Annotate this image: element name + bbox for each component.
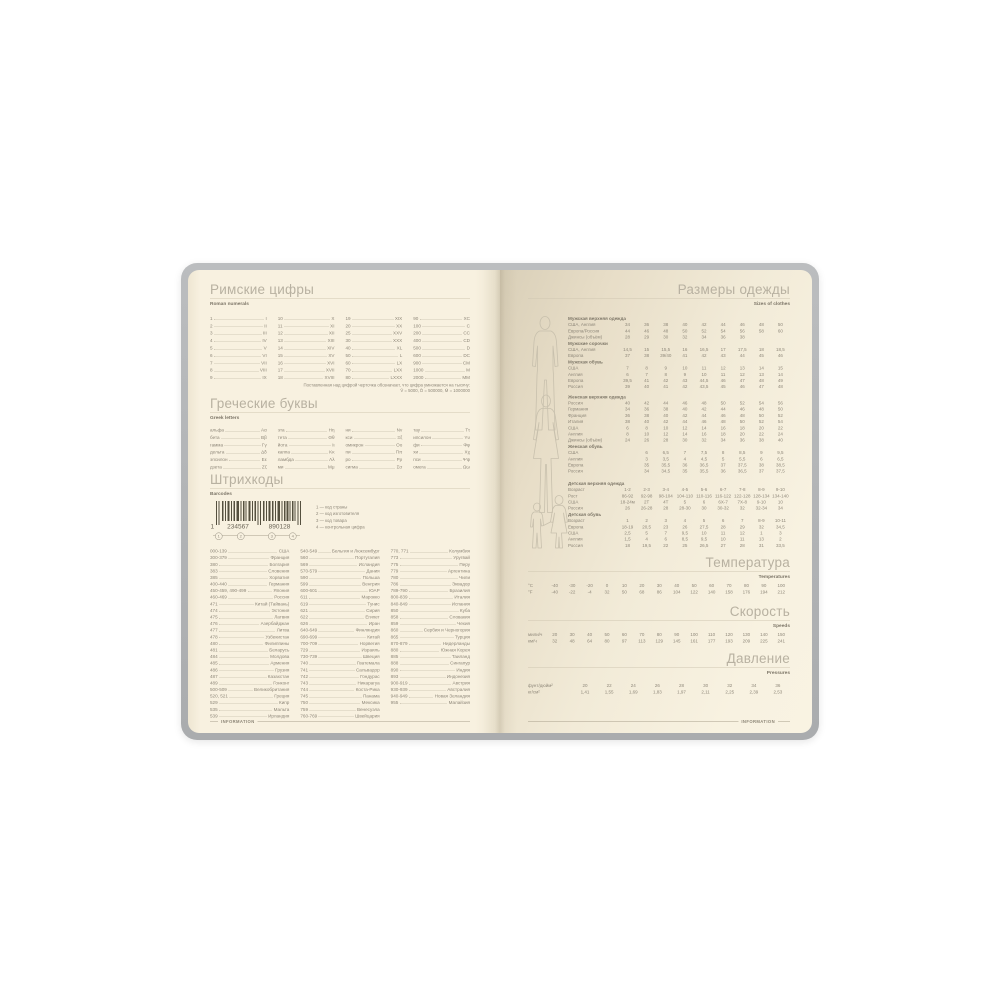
entry-value: Швейцария bbox=[355, 713, 380, 718]
size-value: 38 bbox=[733, 335, 752, 341]
legend-item: 4 — контрольная цифра bbox=[316, 524, 365, 531]
size-value: 37 bbox=[752, 469, 771, 475]
list-item: тетаΘθ bbox=[278, 432, 335, 439]
dot-leader bbox=[228, 558, 269, 559]
metric-value: 122 bbox=[685, 590, 702, 597]
metric-value: 32 bbox=[546, 639, 563, 646]
metric-value: 113 bbox=[633, 639, 650, 646]
list-item: фиΦφ bbox=[413, 440, 470, 447]
barcodes-section: Штрихкоды Barcodes bbox=[210, 472, 470, 718]
size-row: Россия2626-282828-303030-323232-3434 bbox=[568, 506, 790, 512]
size-row: Россия3434,53535,53636,53737,5 bbox=[568, 469, 790, 475]
entry-value: MM bbox=[462, 375, 470, 380]
size-value: 28 bbox=[733, 543, 752, 549]
dot-leader bbox=[400, 611, 459, 612]
list-item: 3III bbox=[210, 328, 267, 335]
dot-leader bbox=[289, 446, 331, 447]
dot-leader bbox=[432, 438, 462, 439]
size-value: 26-28 bbox=[637, 506, 656, 512]
dot-leader bbox=[310, 605, 366, 606]
list-item: эпсилонΕε bbox=[210, 455, 267, 462]
barcode-marker-1: 1 bbox=[215, 532, 223, 540]
dot-leader bbox=[352, 319, 393, 320]
footer-line bbox=[258, 721, 470, 722]
dot-column: 540-549Бельгия и Люксембург560Португалия… bbox=[300, 547, 379, 718]
size-value: 28 bbox=[618, 335, 637, 341]
row-label: Россия bbox=[568, 384, 618, 390]
metric-value: 209 bbox=[738, 639, 755, 646]
pressure-section-subtitle: Pressures bbox=[528, 670, 790, 676]
size-value: 34 bbox=[637, 469, 656, 475]
size-value: 36,5 bbox=[733, 469, 752, 475]
speed-section-subtitle: Speeds bbox=[528, 623, 790, 629]
size-row: Джинсы (объём)28293032343638 bbox=[568, 335, 790, 341]
screenshot-canvas: Римские цифры Roman numerals 1I2II3III4I… bbox=[0, 0, 1000, 1000]
temperature-table: °C-40-30-200102030405060708090100°F-40-2… bbox=[528, 583, 790, 596]
divider-line bbox=[210, 298, 470, 299]
entry-key: 539 bbox=[210, 713, 218, 718]
metric-value: 129 bbox=[651, 639, 668, 646]
size-value: 47 bbox=[752, 384, 771, 390]
size-value: 35 bbox=[675, 469, 694, 475]
size-row: Европа373839/40414243444546 bbox=[568, 353, 790, 359]
dot-leader bbox=[400, 585, 451, 586]
barcodes-section-title: Штрихкоды bbox=[210, 472, 470, 487]
list-item: омикронΟο bbox=[346, 440, 403, 447]
size-value: 31 bbox=[752, 543, 771, 549]
children-figure-icon bbox=[528, 481, 572, 551]
dot-leader bbox=[223, 468, 260, 469]
size-value bbox=[618, 469, 637, 475]
barcodes-section-subtitle: Barcodes bbox=[210, 491, 470, 497]
row-label: км/ч bbox=[528, 639, 546, 646]
metric-row: км/ч324864809711312914516117719320922524… bbox=[528, 639, 790, 646]
entry-value: Ирландия bbox=[268, 713, 289, 718]
list-item: 1000M bbox=[413, 365, 470, 372]
dot-leader bbox=[228, 690, 252, 691]
size-tables: Мужская верхняя одеждаСША, Англия3436384… bbox=[528, 316, 790, 549]
size-value: 32 bbox=[675, 335, 694, 341]
dot-leader bbox=[219, 565, 268, 566]
entry-key: дзета bbox=[210, 464, 222, 469]
metric-value: 2,39 bbox=[742, 690, 766, 697]
barcode-markers: 1 2 3 4 bbox=[210, 530, 303, 542]
metric-value: 1,97 bbox=[669, 690, 693, 697]
man-sizes-block: Мужская верхняя одеждаСША, Англия3436384… bbox=[528, 316, 790, 390]
size-value: 26 bbox=[637, 438, 656, 444]
dot-leader bbox=[219, 717, 266, 718]
size-value: 45 bbox=[752, 353, 771, 359]
dot-leader bbox=[319, 644, 358, 645]
size-value: 34 bbox=[771, 506, 790, 512]
pressure-section: Давление Pressures фунт/дюйм²20222426283… bbox=[528, 651, 790, 696]
dot-leader bbox=[425, 371, 465, 372]
children-figure bbox=[528, 481, 568, 549]
list-item: 80LXXX bbox=[346, 373, 403, 380]
dot-leader bbox=[354, 438, 396, 439]
list-item: 200CC bbox=[413, 328, 470, 335]
dot-leader bbox=[219, 611, 270, 612]
dot-leader bbox=[400, 657, 450, 658]
dot-leader bbox=[365, 446, 395, 447]
list-item: 4IV bbox=[210, 336, 267, 343]
dot-leader bbox=[219, 624, 259, 625]
entry-key: 955 bbox=[391, 700, 399, 705]
metric-value: 2,11 bbox=[694, 690, 718, 697]
dot-leader bbox=[319, 631, 354, 632]
list-item: бетаΒβ bbox=[210, 432, 267, 439]
divider-line bbox=[528, 620, 790, 621]
footer-line bbox=[528, 721, 738, 722]
size-value: 42 bbox=[694, 353, 713, 359]
size-value: 39/40 bbox=[656, 353, 675, 359]
list-item: ниΝν bbox=[346, 425, 403, 432]
dot-leader bbox=[214, 334, 261, 335]
size-value: 46 bbox=[771, 353, 790, 359]
size-value: 18 bbox=[618, 543, 637, 549]
dot-leader bbox=[400, 651, 439, 652]
dot-leader bbox=[214, 356, 261, 357]
list-item: 25XXV bbox=[346, 328, 403, 335]
divider-line bbox=[528, 667, 790, 668]
list-item: 60LX bbox=[346, 358, 403, 365]
dot-leader bbox=[400, 565, 458, 566]
dot-column: 770, 771Колумбия773Уругвай775Перу779Арге… bbox=[391, 547, 470, 718]
dot-leader bbox=[422, 341, 461, 342]
dot-leader bbox=[214, 341, 261, 342]
dot-column: 10X11XI12XII13XIII14XIV15XV16XVI17XVII18… bbox=[278, 314, 335, 381]
dot-leader bbox=[284, 341, 326, 342]
entry-key: сигма bbox=[346, 464, 358, 469]
dot-leader bbox=[285, 468, 327, 469]
barcode-right-digits: 890128 bbox=[269, 523, 291, 530]
dot-column: этаΗηтетаΘθйотаΙιкаппаΚκламбдаΛλмиΜμ bbox=[278, 425, 335, 469]
list-item: 10X bbox=[278, 314, 335, 321]
dot-leader bbox=[310, 624, 368, 625]
list-item: дзетаΖζ bbox=[210, 462, 267, 469]
dot-leader bbox=[225, 431, 259, 432]
right-page-content: Размеры одежды Sizes of clothes Мужская … bbox=[500, 270, 812, 733]
size-value: 43 bbox=[714, 353, 733, 359]
metric-value: 1,83 bbox=[645, 690, 669, 697]
dot-leader bbox=[310, 578, 362, 579]
dot-leader bbox=[352, 341, 391, 342]
greek-letters-table: альфаΑαбетаΒβгаммаΓγдельтаΔδэпсилонΕεдзе… bbox=[210, 425, 470, 469]
woman-figure bbox=[528, 394, 568, 475]
list-item: 7VII bbox=[210, 358, 267, 365]
footer-line bbox=[210, 721, 218, 722]
list-item: 11XI bbox=[278, 321, 335, 328]
list-item: 40XL bbox=[346, 343, 403, 350]
dot-leader bbox=[284, 327, 329, 328]
list-item: йотаΙι bbox=[278, 440, 335, 447]
notebook-spread: Римские цифры Roman numerals 1I2II3III4I… bbox=[188, 270, 812, 733]
row-label: кг/см² bbox=[528, 690, 573, 697]
greek-section-title: Греческие буквы bbox=[210, 396, 470, 411]
right-page-footer: INFORMATION bbox=[528, 719, 790, 724]
list-item: 8VIII bbox=[210, 365, 267, 372]
right-page: Размеры одежды Sizes of clothes Мужская … bbox=[500, 270, 812, 733]
metric-value: 194 bbox=[755, 590, 772, 597]
temperature-section-subtitle: Temperatures bbox=[528, 574, 790, 580]
dot-leader bbox=[422, 460, 461, 461]
dot-leader bbox=[284, 364, 325, 365]
dot-leader bbox=[219, 684, 272, 685]
list-item: 400CD bbox=[413, 336, 470, 343]
dot-leader bbox=[310, 704, 361, 705]
size-value: 38 bbox=[752, 438, 771, 444]
list-item: 500D bbox=[413, 343, 470, 350]
row-label: °F bbox=[528, 590, 546, 597]
divider-line bbox=[210, 412, 470, 413]
list-item: ипсилонΥυ bbox=[413, 432, 470, 439]
dot-leader bbox=[219, 671, 273, 672]
dot-leader bbox=[219, 644, 263, 645]
metric-value: 2,53 bbox=[766, 690, 790, 697]
dot-leader bbox=[219, 618, 273, 619]
dot-leader bbox=[226, 453, 260, 454]
entry-key: ми bbox=[278, 464, 284, 469]
dot-leader bbox=[219, 605, 253, 606]
dot-leader bbox=[310, 565, 358, 566]
dot-leader bbox=[219, 578, 268, 579]
metric-value: 193 bbox=[720, 639, 737, 646]
dot-leader bbox=[219, 651, 268, 652]
metric-value: 225 bbox=[755, 639, 772, 646]
dot-leader bbox=[422, 356, 461, 357]
list-item: 14XIV bbox=[278, 343, 335, 350]
metric-value: 241 bbox=[773, 639, 790, 646]
dot-leader bbox=[319, 717, 354, 718]
dot-leader bbox=[284, 371, 324, 372]
sizes-section-subtitle: Sizes of clothes bbox=[528, 301, 790, 307]
list-item: 600DC bbox=[413, 350, 470, 357]
dot-leader bbox=[228, 585, 267, 586]
row-label: Россия bbox=[568, 469, 618, 475]
entry-value: Малайзия bbox=[449, 700, 470, 705]
list-item: 539Ирландия bbox=[210, 712, 289, 719]
dot-leader bbox=[427, 468, 461, 469]
size-value: 39 bbox=[618, 384, 637, 390]
dot-leader bbox=[352, 378, 389, 379]
size-value: 37,5 bbox=[771, 469, 790, 475]
size-value: 48 bbox=[771, 384, 790, 390]
row-label: Джинсы (объём) bbox=[568, 335, 618, 341]
dot-column: 1I2II3III4IV5V6VI7VII8VIII9IX bbox=[210, 314, 267, 381]
dot-column: ниΝνксиΞξомикронΟοпиΠπроΡρсигмаΣσ bbox=[346, 425, 403, 469]
size-value: 26 bbox=[618, 506, 637, 512]
dot-leader bbox=[219, 710, 272, 711]
entry-value: LXXX bbox=[391, 375, 403, 380]
entry-key: 18 bbox=[278, 375, 283, 380]
left-page: Римские цифры Roman numerals 1I2II3III4I… bbox=[188, 270, 500, 733]
list-item: альфаΑα bbox=[210, 425, 267, 432]
metric-value: 1,41 bbox=[573, 690, 597, 697]
list-item: каппаΚκ bbox=[278, 447, 335, 454]
dot-column: 19XIX20XX25XXV30XXX40XL50L60LX70LXX80LXX… bbox=[346, 314, 403, 381]
dot-leader bbox=[409, 684, 451, 685]
list-item: 9IX bbox=[210, 373, 267, 380]
size-row: Джинсы (объём)242628303234363840 bbox=[568, 438, 790, 444]
size-value: 28-30 bbox=[675, 506, 694, 512]
dot-leader bbox=[248, 591, 272, 592]
dot-leader bbox=[400, 572, 447, 573]
list-item: роΡρ bbox=[346, 455, 403, 462]
metric-value: 86 bbox=[651, 590, 668, 597]
list-item: 2II bbox=[210, 321, 267, 328]
size-value bbox=[752, 335, 771, 341]
metric-value: 104 bbox=[668, 590, 685, 597]
divider-line bbox=[528, 571, 790, 572]
dot-leader bbox=[400, 677, 445, 678]
dot-leader bbox=[284, 356, 327, 357]
dot-leader bbox=[214, 327, 263, 328]
woman-sizes-block: Женская верхняя одеждаРоссия404244464850… bbox=[528, 394, 790, 475]
size-value: 43,5 bbox=[694, 384, 713, 390]
dot-leader bbox=[319, 591, 368, 592]
list-item: 12XII bbox=[278, 328, 335, 335]
dot-leader bbox=[420, 453, 463, 454]
metric-value: 140 bbox=[703, 590, 720, 597]
dot-leader bbox=[286, 431, 327, 432]
temperature-section: Температура Temperatures °C-40-30-200102… bbox=[528, 555, 790, 596]
size-value: 30 bbox=[675, 438, 694, 444]
roman-numerals-table: 1I2II3III4IV5V6VI7VII8VIII9IX10X11XI12XI… bbox=[210, 314, 470, 381]
barcode-graphic: 1 234567 890128 1 2 3 4 bbox=[210, 501, 303, 543]
list-item: пиΠπ bbox=[346, 447, 403, 454]
list-item: 1I bbox=[210, 314, 267, 321]
list-item: гаммаΓγ bbox=[210, 440, 267, 447]
speed-section: Скорость Speeds мили/ч203040506070809010… bbox=[528, 604, 790, 645]
dot-leader bbox=[409, 690, 446, 691]
left-page-footer: INFORMATION bbox=[210, 719, 470, 724]
metric-value: -4 bbox=[581, 590, 598, 597]
size-value: 36 bbox=[714, 335, 733, 341]
entry-value: Ωω bbox=[463, 464, 470, 469]
row-label: Джинсы (объём) bbox=[568, 438, 618, 444]
entry-key: 760-769 bbox=[300, 713, 317, 718]
dot-leader bbox=[352, 453, 394, 454]
dot-leader bbox=[219, 664, 269, 665]
roman-section-title: Римские цифры bbox=[210, 282, 470, 297]
size-value: 44 bbox=[733, 353, 752, 359]
dot-leader bbox=[310, 684, 357, 685]
list-item: 6VI bbox=[210, 350, 267, 357]
dot-leader bbox=[310, 710, 356, 711]
country-codes-table: 000-139США300-379Франция380Болгария383Сл… bbox=[210, 547, 470, 718]
dot-column: альфаΑαбетаΒβгаммаΓγдельтаΔδэпсилонΕεдзе… bbox=[210, 425, 267, 469]
dot-leader bbox=[310, 611, 365, 612]
barcode-block: 1 234567 890128 1 2 3 4 bbox=[210, 501, 470, 543]
dot-column: 000-139США300-379Франция380Болгария383Сл… bbox=[210, 547, 289, 718]
barcode-marker-4: 4 bbox=[289, 532, 297, 540]
size-value: 40 bbox=[637, 384, 656, 390]
speed-section-title: Скорость bbox=[528, 604, 790, 619]
barcode-left-digits: 234567 bbox=[227, 523, 249, 530]
footer-line bbox=[778, 721, 790, 722]
dot-leader bbox=[425, 378, 461, 379]
size-value: 27 bbox=[714, 543, 733, 549]
dot-leader bbox=[319, 572, 365, 573]
speed-table: мили/ч2030405060708090100110120130140150… bbox=[528, 632, 790, 645]
list-item: 20XX bbox=[346, 321, 403, 328]
row-label: Европа bbox=[568, 353, 618, 359]
dot-leader bbox=[221, 438, 259, 439]
dot-leader bbox=[409, 697, 433, 698]
metric-value: 1,69 bbox=[621, 690, 645, 697]
metric-value: 158 bbox=[720, 590, 737, 597]
dot-leader bbox=[409, 598, 453, 599]
metric-value: 80 bbox=[598, 639, 615, 646]
dot-leader bbox=[420, 319, 462, 320]
dot-leader bbox=[352, 327, 395, 328]
dot-column: 90XC100C200CC400CD500D600DC900CM1000M200… bbox=[413, 314, 470, 381]
list-item: 19XIX bbox=[346, 314, 403, 321]
list-item: 30XXX bbox=[346, 336, 403, 343]
dot-leader bbox=[352, 334, 391, 335]
dot-leader bbox=[229, 697, 272, 698]
dot-leader bbox=[352, 349, 395, 350]
barcode-marker-2: 2 bbox=[237, 532, 245, 540]
dot-leader bbox=[309, 598, 360, 599]
dot-leader bbox=[291, 453, 327, 454]
pressure-table: фунт/дюйм²202224262830323436кг/см²1,411,… bbox=[528, 683, 790, 696]
dot-leader bbox=[310, 558, 354, 559]
dot-leader bbox=[409, 605, 450, 606]
list-item: дельтаΔδ bbox=[210, 447, 267, 454]
dot-leader bbox=[295, 460, 327, 461]
clothing-sizes-section: Размеры одежды Sizes of clothes Мужская … bbox=[528, 282, 790, 549]
dot-leader bbox=[310, 677, 359, 678]
dot-leader bbox=[359, 468, 395, 469]
size-value: 34 bbox=[694, 335, 713, 341]
dot-leader bbox=[310, 618, 364, 619]
dot-leader bbox=[400, 671, 455, 672]
dot-leader bbox=[214, 364, 260, 365]
dot-leader bbox=[219, 657, 268, 658]
metric-value: 161 bbox=[685, 639, 702, 646]
list-item: хиΧχ bbox=[413, 447, 470, 454]
size-value bbox=[771, 335, 790, 341]
dot-leader bbox=[310, 664, 356, 665]
dot-leader bbox=[310, 585, 361, 586]
size-value: 33,5 bbox=[771, 543, 790, 549]
dot-leader bbox=[352, 364, 395, 365]
legend-item: 3 — код товара bbox=[316, 517, 365, 524]
row-label: Россия bbox=[568, 506, 618, 512]
dot-leader bbox=[319, 552, 331, 553]
size-value: 35,5 bbox=[694, 469, 713, 475]
dot-leader bbox=[310, 697, 362, 698]
list-item: ламбдаΛλ bbox=[278, 455, 335, 462]
metric-value: 212 bbox=[773, 590, 790, 597]
dot-leader bbox=[422, 327, 465, 328]
entry-value: Μμ bbox=[328, 464, 334, 469]
size-value: 22 bbox=[656, 543, 675, 549]
metric-value: 97 bbox=[616, 639, 633, 646]
list-item: 2000MM bbox=[413, 373, 470, 380]
list-item: 5V bbox=[210, 343, 267, 350]
list-item: 15XV bbox=[278, 350, 335, 357]
list-item: 760-769Швейцария bbox=[300, 712, 379, 719]
entry-key: 2000 bbox=[413, 375, 423, 380]
metric-value: 50 bbox=[616, 590, 633, 597]
size-value: 30 bbox=[656, 335, 675, 341]
dot-leader bbox=[310, 690, 355, 691]
legend-item: 1 — код страны bbox=[316, 504, 365, 511]
dot-leader bbox=[228, 552, 277, 553]
dot-leader bbox=[219, 631, 275, 632]
